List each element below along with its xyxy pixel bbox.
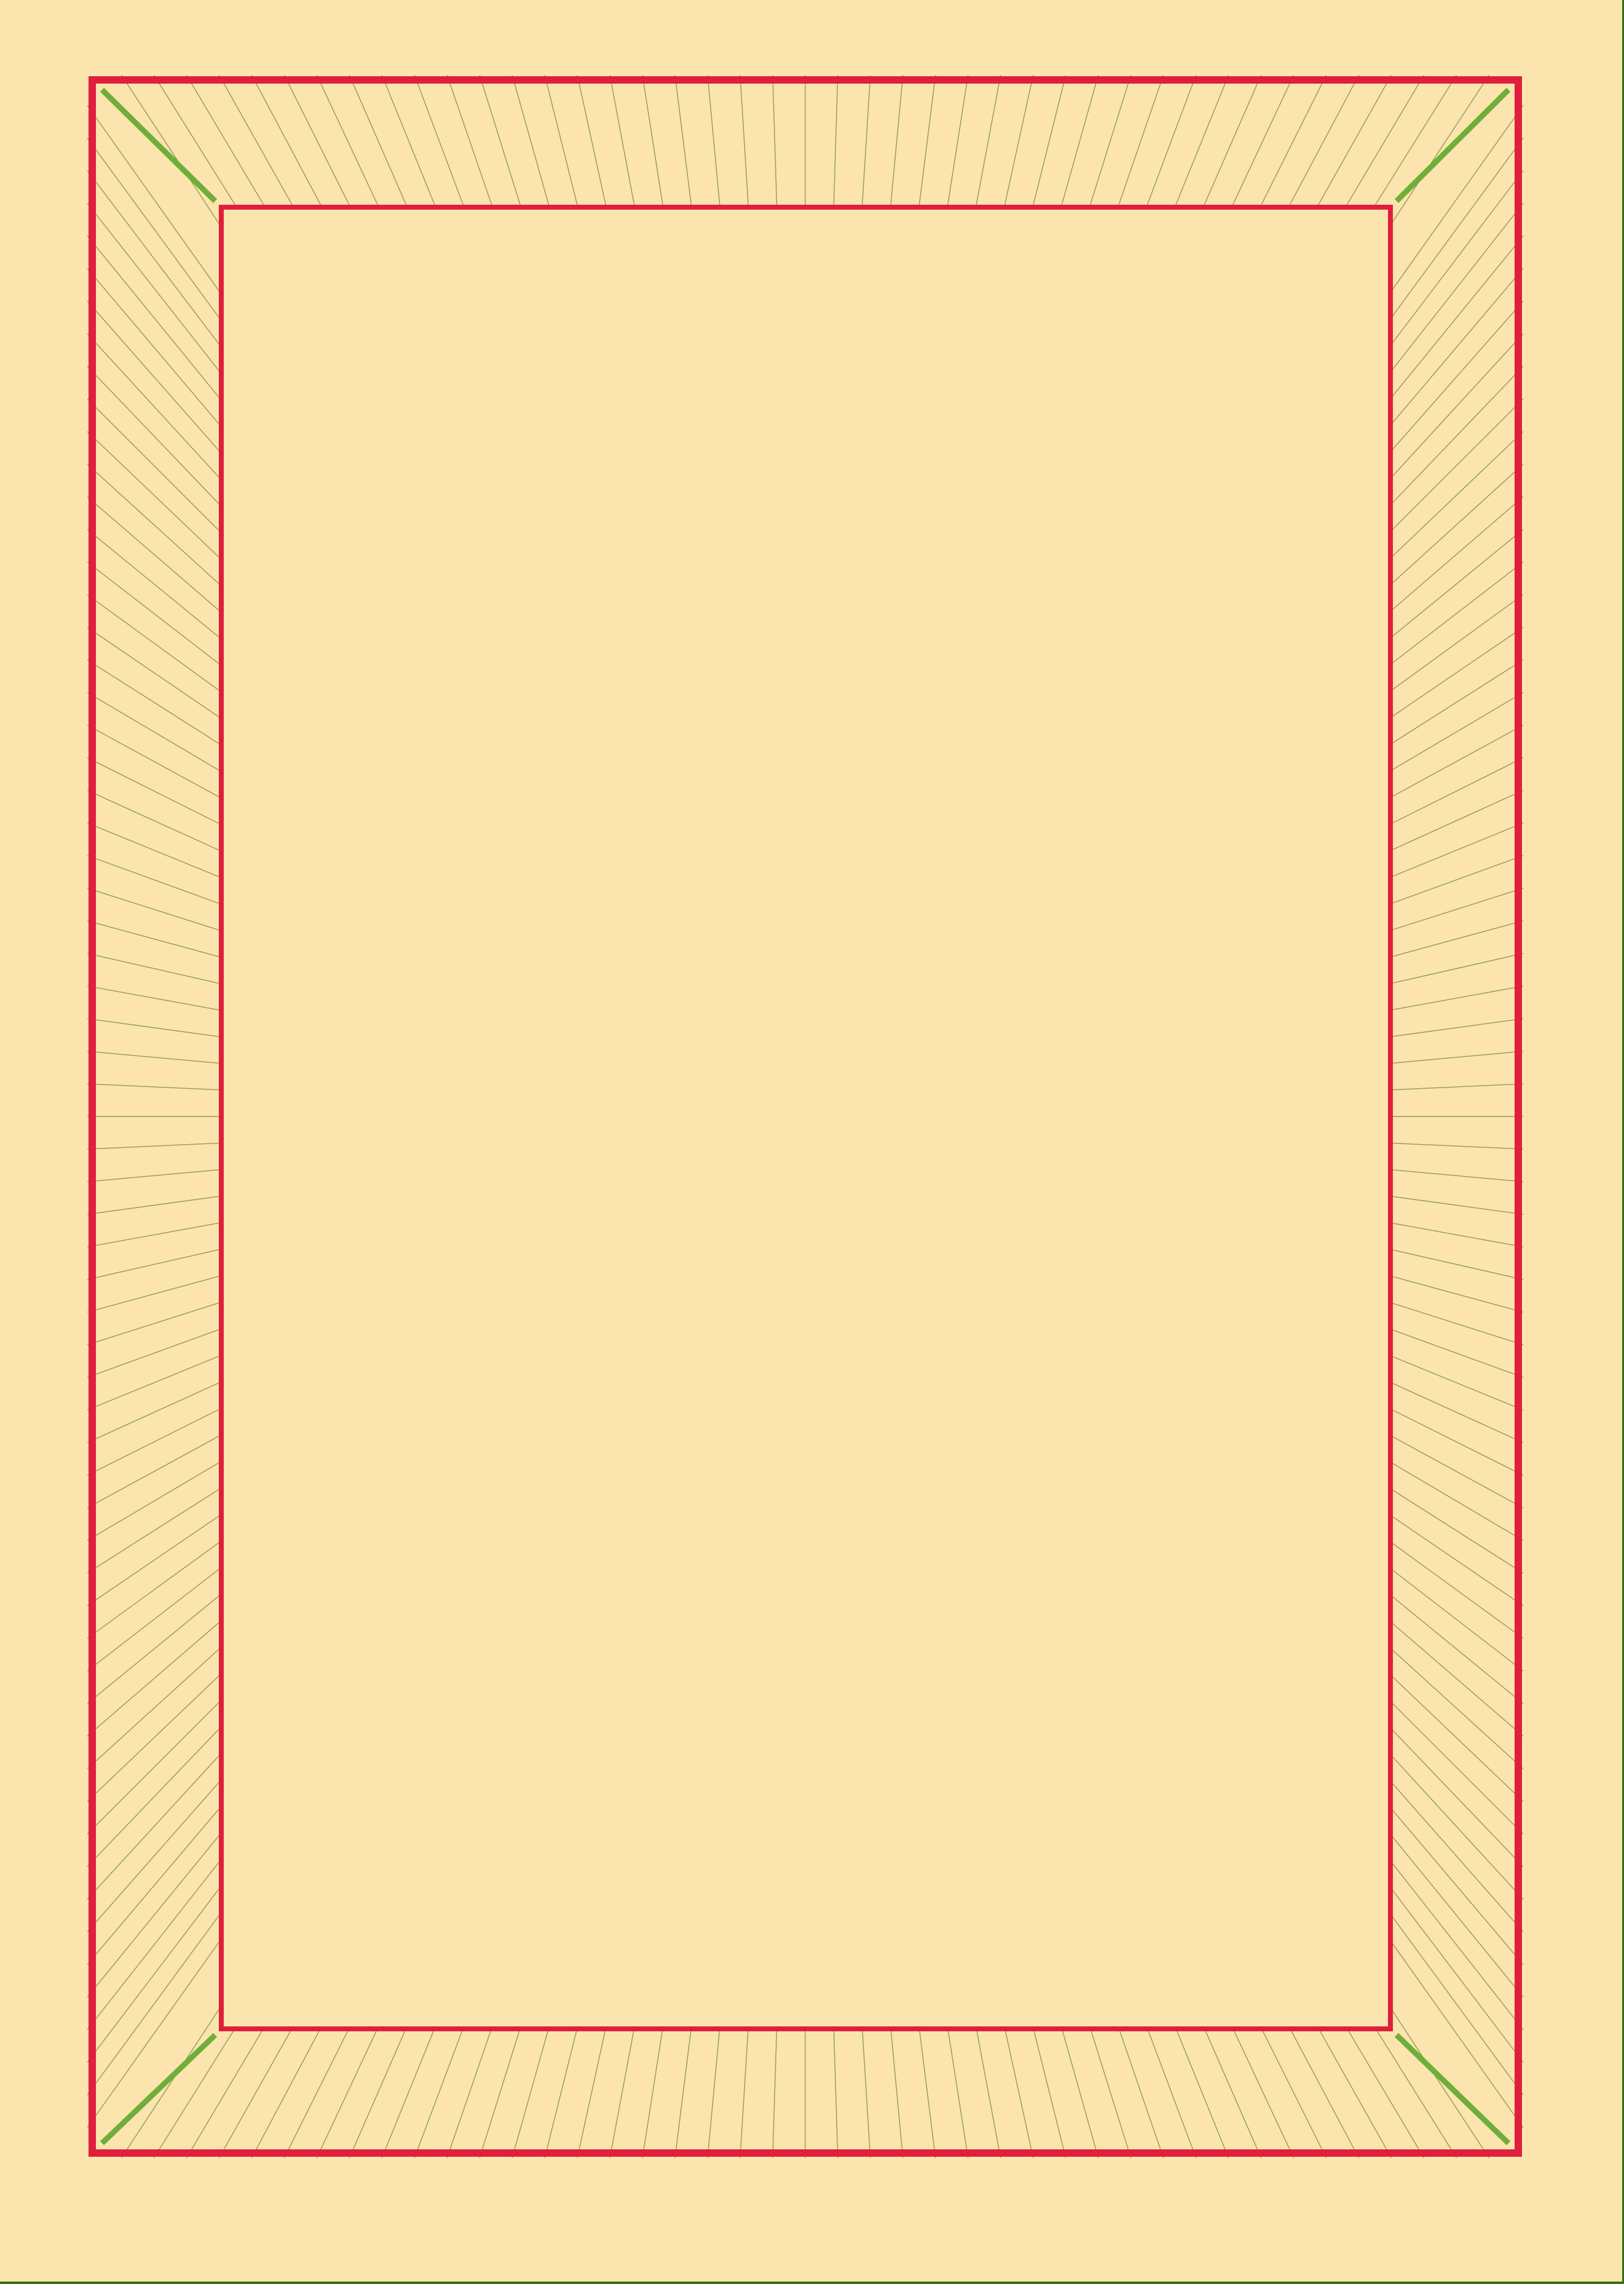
stationery-page	[0, 0, 1624, 2284]
decorative-border-frame	[0, 0, 1624, 2284]
page-background	[0, 0, 1624, 2284]
